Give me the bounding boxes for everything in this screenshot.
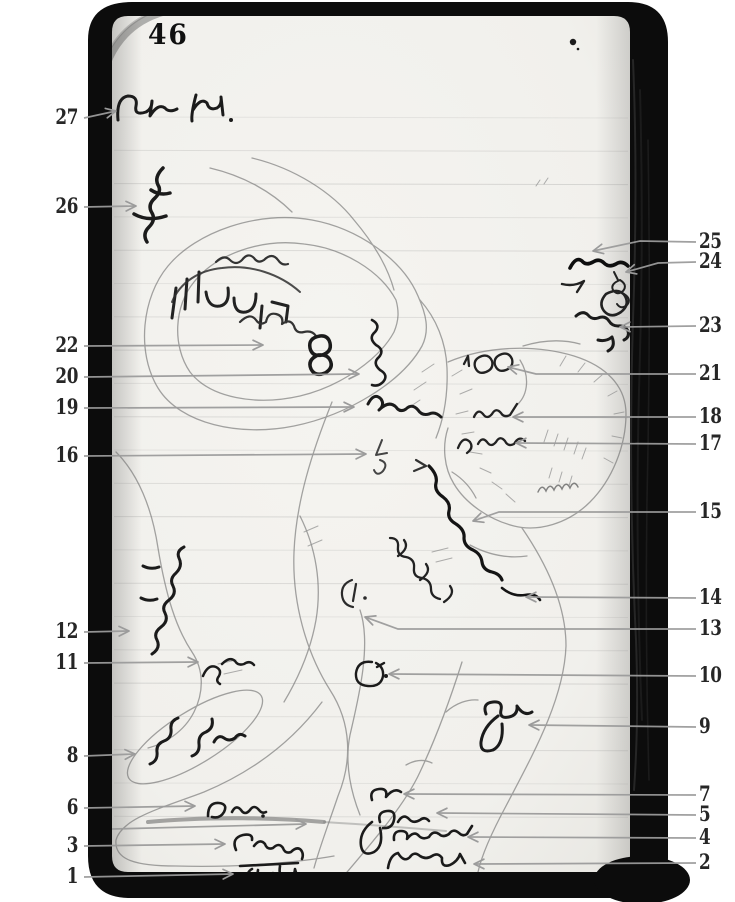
callout-number-21: 21 xyxy=(699,360,733,386)
leader-line-17 xyxy=(516,443,696,444)
leader-line-22 xyxy=(84,345,263,346)
callout-number-24: 24 xyxy=(699,248,733,274)
callout-number-27: 27 xyxy=(44,104,78,130)
paper-left-shade xyxy=(112,16,142,872)
callout-number-1: 1 xyxy=(44,863,78,889)
callout-number-2: 2 xyxy=(699,849,733,875)
notebook-scan-art xyxy=(0,0,735,902)
callout-number-4: 4 xyxy=(699,824,733,850)
annotated-notebook-scan: 46 2726222019161211863125242321181715141… xyxy=(0,0,735,902)
leader-line-14 xyxy=(526,597,696,598)
leader-line-7 xyxy=(404,794,696,795)
callout-number-8: 8 xyxy=(44,742,78,768)
callout-number-11: 11 xyxy=(44,649,78,675)
callout-number-6: 6 xyxy=(44,794,78,820)
callout-number-18: 18 xyxy=(699,403,733,429)
leader-line-26 xyxy=(84,206,136,207)
callout-number-3: 3 xyxy=(44,832,78,858)
leader-line-12 xyxy=(84,631,129,632)
leader-line-19 xyxy=(84,407,354,408)
callout-number-26: 26 xyxy=(44,193,78,219)
callout-number-16: 16 xyxy=(44,442,78,468)
callout-number-10: 10 xyxy=(699,662,733,688)
callout-number-23: 23 xyxy=(699,312,733,338)
callout-number-22: 22 xyxy=(44,332,78,358)
page-number: 46 xyxy=(148,18,189,51)
callout-number-14: 14 xyxy=(699,584,733,610)
leader-line-2 xyxy=(474,863,696,864)
leader-line-23 xyxy=(620,326,696,327)
callout-number-17: 17 xyxy=(699,430,733,456)
leader-line-11 xyxy=(84,662,198,663)
callout-number-9: 9 xyxy=(699,713,733,739)
leader-line-4 xyxy=(468,837,696,838)
callout-number-13: 13 xyxy=(699,615,733,641)
callout-number-20: 20 xyxy=(44,363,78,389)
callout-number-12: 12 xyxy=(44,618,78,644)
callout-number-19: 19 xyxy=(44,394,78,420)
callout-number-15: 15 xyxy=(699,498,733,524)
